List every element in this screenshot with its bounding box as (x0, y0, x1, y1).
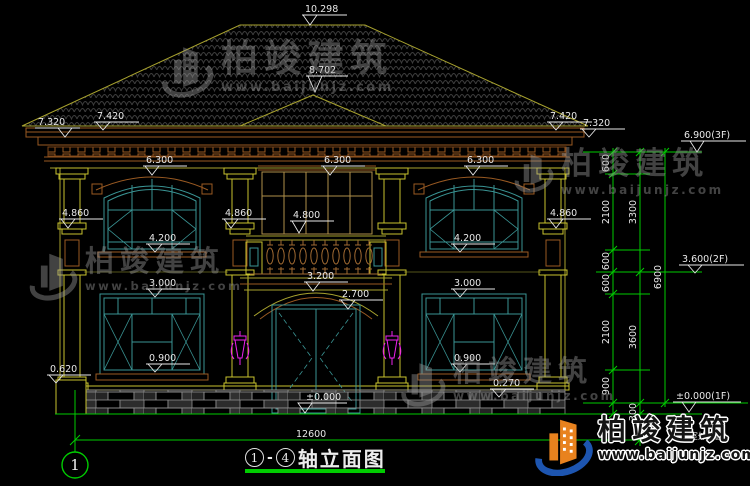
chain-dim: 2100 (601, 320, 612, 344)
drawing-title: 1 - 4 轴立面图 (245, 443, 386, 472)
level-1f: ±0.000(1F) (676, 391, 730, 402)
brand-logo-icon (531, 412, 593, 476)
dim-bay-ridge: 8.702 (309, 65, 336, 76)
dim-door-head: 2.700 (342, 289, 369, 300)
chain-dim: 600 (601, 252, 612, 270)
chain-dim: 3300 (628, 200, 639, 224)
level-2f: 3.600(2F) (682, 254, 728, 265)
level-3f: 6.900(3F) (684, 130, 730, 141)
dim-floor-zero: ±0.000 (306, 392, 341, 403)
dim-entry-arch: 3.200 (307, 271, 334, 282)
dim-capital: 4.860 (550, 208, 577, 219)
lamp-icon (383, 331, 401, 365)
chain-dim: 600 (601, 154, 612, 172)
dim-window-head: 3.000 (149, 278, 176, 289)
window-2f-left (92, 177, 212, 257)
dim-balcony-rail: 4.800 (293, 210, 320, 221)
dim-eave: 7.320 (583, 118, 610, 129)
lamp-icon (231, 331, 249, 365)
dim-window-sill: 4.200 (149, 233, 176, 244)
chain-dim: 900 (601, 377, 612, 395)
title-underline (245, 469, 385, 473)
dim-eave: 7.320 (38, 117, 65, 128)
brand-url: www.baijunjz.com (598, 447, 750, 463)
axis-bubble-1: 1 (70, 456, 80, 474)
dim-window-head: 6.300 (467, 155, 494, 166)
dim-window-sill: 4.200 (454, 233, 481, 244)
drawing-title-text: 轴立面图 (298, 443, 386, 472)
dim-total-width: 12600 (296, 429, 326, 440)
chain-dim: 600 (601, 274, 612, 292)
dim-window-sill: 0.900 (454, 353, 481, 364)
axis-circle-to: 4 (276, 448, 295, 467)
dim-ridge: 10.298 (305, 4, 338, 15)
chain-dim: 6900 (653, 265, 664, 289)
cad-elevation-screenshot: { "drawing": { "title": { "axis_from": "… (0, 0, 750, 486)
dim-window-sill: 0.900 (149, 353, 176, 364)
chain-dim: 3600 (628, 325, 639, 349)
dim-plinth: 0.270 (493, 378, 520, 389)
dim-capital: 4.860 (62, 208, 89, 219)
axis-circle-from: 1 (245, 448, 264, 467)
dim-window-head: 3.000 (454, 278, 481, 289)
dimension-chain-labels: 600 2100 600 600 2100 900 3300 3600 300 … (601, 154, 664, 421)
window-2f-center (258, 166, 376, 234)
dim-eave: 7.420 (97, 111, 124, 122)
window-2f-right (414, 177, 534, 257)
dim-plinth: 0.620 (50, 364, 77, 375)
dim-window-head: 6.300 (324, 155, 351, 166)
brand-logo: 柏竣建筑 www.baijunjz.com (531, 412, 750, 476)
dim-capital: 4.860 (225, 208, 252, 219)
dim-eave: 7.420 (550, 111, 577, 122)
window-1f-right (418, 294, 530, 380)
axis-range-dash: - (267, 450, 273, 466)
brand-name: 柏竣建筑 (598, 416, 750, 444)
eave-cornice (22, 126, 588, 168)
chain-dim: 2100 (601, 200, 612, 224)
dim-window-head: 6.300 (146, 155, 173, 166)
window-1f-left (96, 294, 208, 380)
